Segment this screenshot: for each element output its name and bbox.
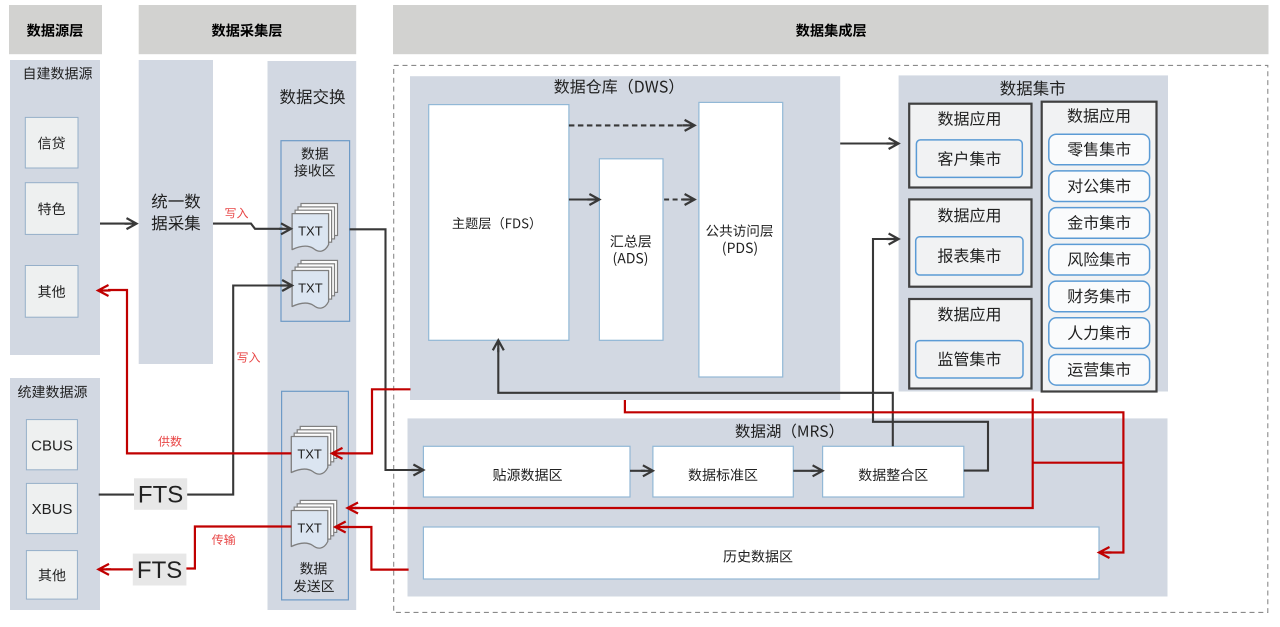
svg-text:TXT: TXT	[297, 521, 322, 536]
svg-text:FTS: FTS	[137, 557, 182, 584]
svg-text:TXT: TXT	[298, 281, 323, 296]
svg-text:CBUS: CBUS	[31, 438, 73, 455]
svg-text:XBUS: XBUS	[32, 501, 73, 518]
svg-text:TXT: TXT	[297, 447, 322, 462]
svg-text:TXT: TXT	[298, 224, 323, 239]
svg-text:FTS: FTS	[138, 482, 183, 509]
